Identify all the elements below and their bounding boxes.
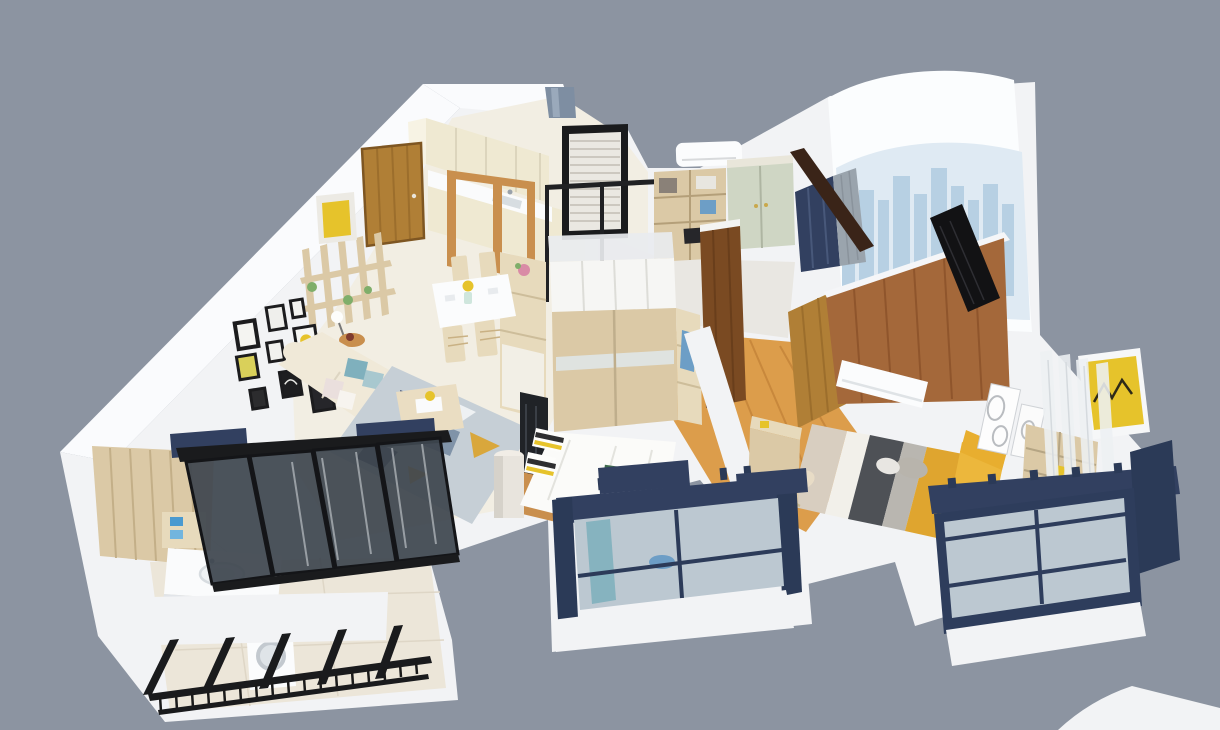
frame-art-white (237, 323, 256, 347)
curtain-hook (988, 474, 997, 485)
curtain-hook (1030, 470, 1039, 481)
frame-art-white (268, 343, 282, 361)
wardrobe-handle (754, 204, 758, 208)
frame-art-dark (252, 390, 266, 408)
sofa-arm (283, 342, 307, 362)
dining-chair (479, 251, 498, 279)
desk-yellow-note (760, 421, 769, 428)
kitchen-faucet (508, 190, 513, 195)
flower-bouquet-leaf (515, 263, 521, 269)
blue-box (700, 200, 716, 214)
place-setting (445, 294, 456, 301)
apartment-3d-render: 3D isometric apartment floor plan render… (0, 0, 1220, 730)
coffee-table-flowers (425, 391, 435, 401)
curtain-hook (948, 478, 957, 489)
wardrobe-glass-top (548, 232, 674, 262)
wardrobe-handle (764, 203, 768, 207)
potted-plant (364, 286, 372, 294)
curtain-hook (1072, 467, 1081, 478)
curtain-hook (1114, 463, 1123, 474)
white-column-shade (494, 456, 503, 518)
place-setting (488, 287, 499, 294)
floor-lamp (331, 311, 343, 323)
side-table-bowl (346, 333, 354, 341)
books (659, 178, 677, 193)
partition-post (447, 170, 456, 268)
curtain-hook (719, 468, 727, 481)
wardrobe-upper-cabinets (550, 258, 676, 312)
sliding-doors-group (170, 418, 460, 592)
table-flowers (463, 281, 474, 292)
storage-basket (696, 176, 716, 189)
kitchen-window (545, 87, 576, 118)
potted-plant (307, 282, 317, 292)
towel-light-blue (170, 530, 183, 539)
towel-blue (170, 517, 183, 526)
balcony-fascia (104, 592, 388, 646)
potted-plant (343, 295, 353, 305)
flower-vase (464, 292, 472, 304)
door-handle (412, 194, 416, 198)
dining-chair (451, 255, 470, 283)
frame-art-yellow (238, 356, 257, 378)
display-cube-inner (322, 200, 351, 238)
